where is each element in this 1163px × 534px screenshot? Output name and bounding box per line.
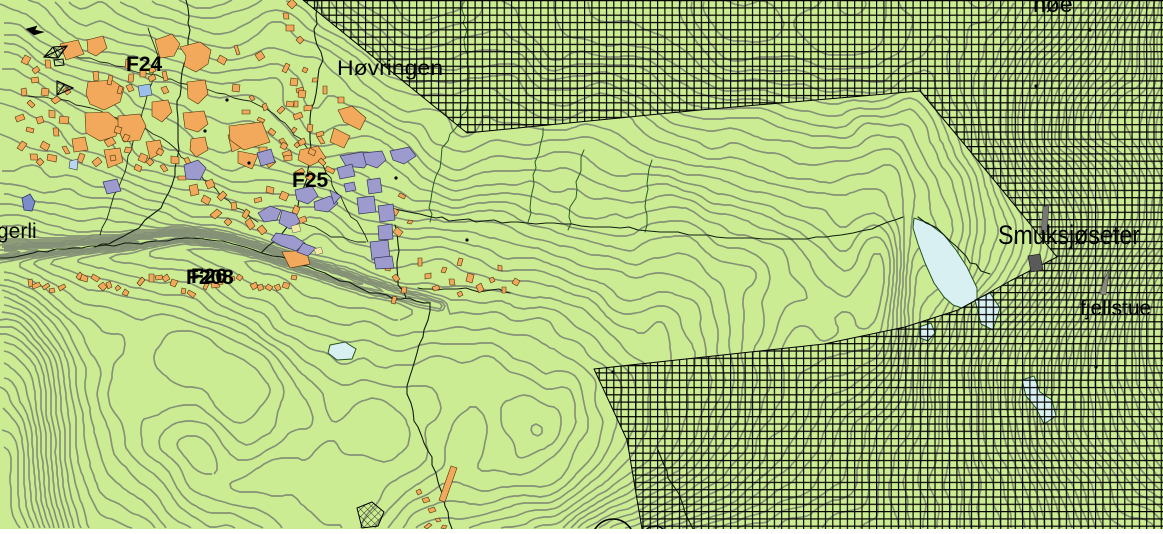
svg-text:gerli: gerli [0,220,37,243]
svg-text:F25: F25 [292,169,329,192]
svg-text:Smuksjøseter: Smuksjøseter [998,220,1140,250]
svg-text:høe: høe [1033,0,1073,17]
svg-text:F24: F24 [126,53,163,76]
svg-text:Høvringen: Høvringen [337,57,443,80]
svg-text:fjellstue: fjellstue [1080,297,1151,320]
svg-text:F26: F26 [191,265,227,288]
